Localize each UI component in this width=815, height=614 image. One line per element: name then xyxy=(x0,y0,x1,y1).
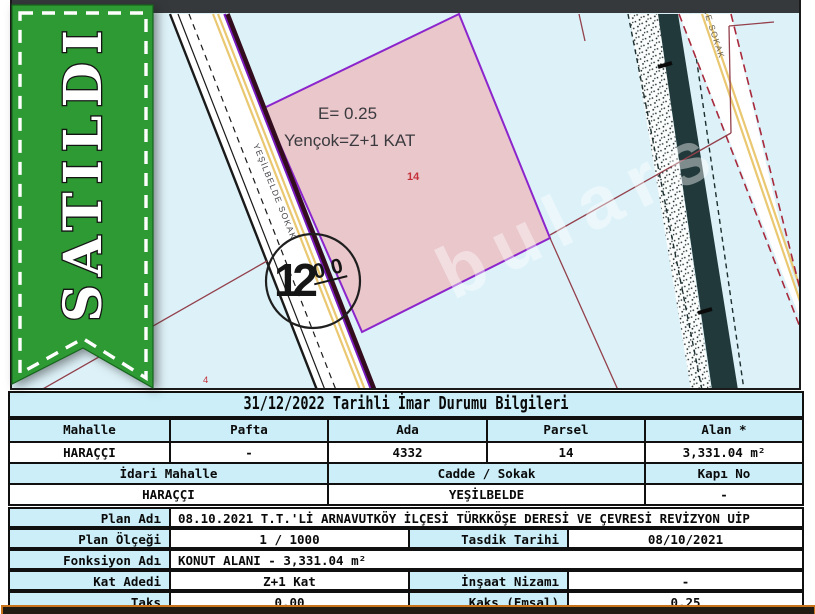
kat-adedi-row: Kat Adedi Z+1 Kat İnşaat Nizamı - xyxy=(8,570,804,591)
zone-note-line2: Yençok=Z+1 KAT xyxy=(284,131,415,150)
map-frame-right xyxy=(799,0,801,390)
label-kat-adedi: Kat Adedi xyxy=(10,572,169,589)
header-alan: Alan * xyxy=(644,420,802,441)
address-header-row: İdari Mahalle Cadde / Sokak Kapı No xyxy=(10,462,802,483)
header-ada: Ada xyxy=(327,420,486,441)
value-insaat-nizami: - xyxy=(567,572,802,589)
label-tasdik-tarihi: Tasdik Tarihi xyxy=(408,530,567,547)
header-cadde-sokak: Cadde / Sokak xyxy=(327,464,644,483)
header-parsel: Parsel xyxy=(486,420,644,441)
header-pafta: Pafta xyxy=(169,420,327,441)
value-fonksiyon-adi: KONUT ALANI - 3,331.04 m² xyxy=(169,551,802,568)
label-plan-adi: Plan Adı xyxy=(10,509,169,526)
value-alan: 3,331.04 m² xyxy=(644,443,802,462)
value-pafta: - xyxy=(169,443,327,462)
value-cadde-sokak: YEŞİLBELDE xyxy=(327,485,644,504)
label-insaat-nizami: İnşaat Nizamı xyxy=(408,572,567,589)
cadastral-line-top xyxy=(729,22,774,26)
table-title: 31/12/2022 Tarihli İmar Durumu Bilgileri xyxy=(243,390,568,420)
parcel-values-row: HARAÇÇI - 4332 14 3,331.04 m² xyxy=(10,441,802,462)
value-mahalle: HARAÇÇI xyxy=(10,443,169,462)
zone-note-line1: E= 0.25 xyxy=(318,104,377,123)
value-kat-adedi: Z+1 Kat xyxy=(169,572,408,589)
value-tasdik-tarihi: 08/10/2021 xyxy=(567,530,802,547)
value-ada: 4332 xyxy=(327,443,486,462)
neighbor-parcel-label: 4 xyxy=(203,375,208,386)
value-kapi-no: - xyxy=(644,485,802,504)
header-idari-mahalle: İdari Mahalle xyxy=(10,464,327,483)
fonksiyon-adi-row: Fonksiyon Adı KONUT ALANI - 3,331.04 m² xyxy=(8,549,804,570)
cadastral-line-north xyxy=(579,14,585,41)
parcel-number-label: 14 xyxy=(407,171,420,183)
label-plan-olcegi: Plan Ölçeği xyxy=(10,530,169,547)
plan-adi-row: Plan Adı 08.10.2021 T.T.'Lİ ARNAVUTKÖY İ… xyxy=(8,507,804,528)
header-kapi-no: Kapı No xyxy=(644,464,802,483)
sold-ribbon: SATILDI xyxy=(0,0,175,400)
plan-olcegi-row: Plan Ölçeği 1 / 1000 Tasdik Tarihi 08/10… xyxy=(8,528,804,549)
label-fonksiyon-adi: Fonksiyon Adı xyxy=(10,551,169,568)
parcel-info-table: Mahalle Pafta Ada Parsel Alan * HARAÇÇI … xyxy=(8,418,804,506)
value-plan-olcegi: 1 / 1000 xyxy=(169,530,408,547)
imar-durumu-page: { "ribbon": { "label": "SATILDI" }, "map… xyxy=(0,0,815,612)
value-plan-adi: 08.10.2021 T.T.'Lİ ARNAVUTKÖY İLÇESİ TÜR… xyxy=(169,509,802,526)
parcel-header-row: Mahalle Pafta Ada Parsel Alan * xyxy=(10,420,802,441)
ribbon-label: SATILDI xyxy=(53,22,114,322)
value-parsel: 14 xyxy=(486,443,644,462)
bottom-section-edge xyxy=(1,605,815,614)
header-mahalle: Mahalle xyxy=(10,420,169,441)
value-idari-mahalle: HARAÇÇI xyxy=(10,485,327,504)
address-values-row: HARAÇÇI YEŞİLBELDE - xyxy=(10,483,802,504)
